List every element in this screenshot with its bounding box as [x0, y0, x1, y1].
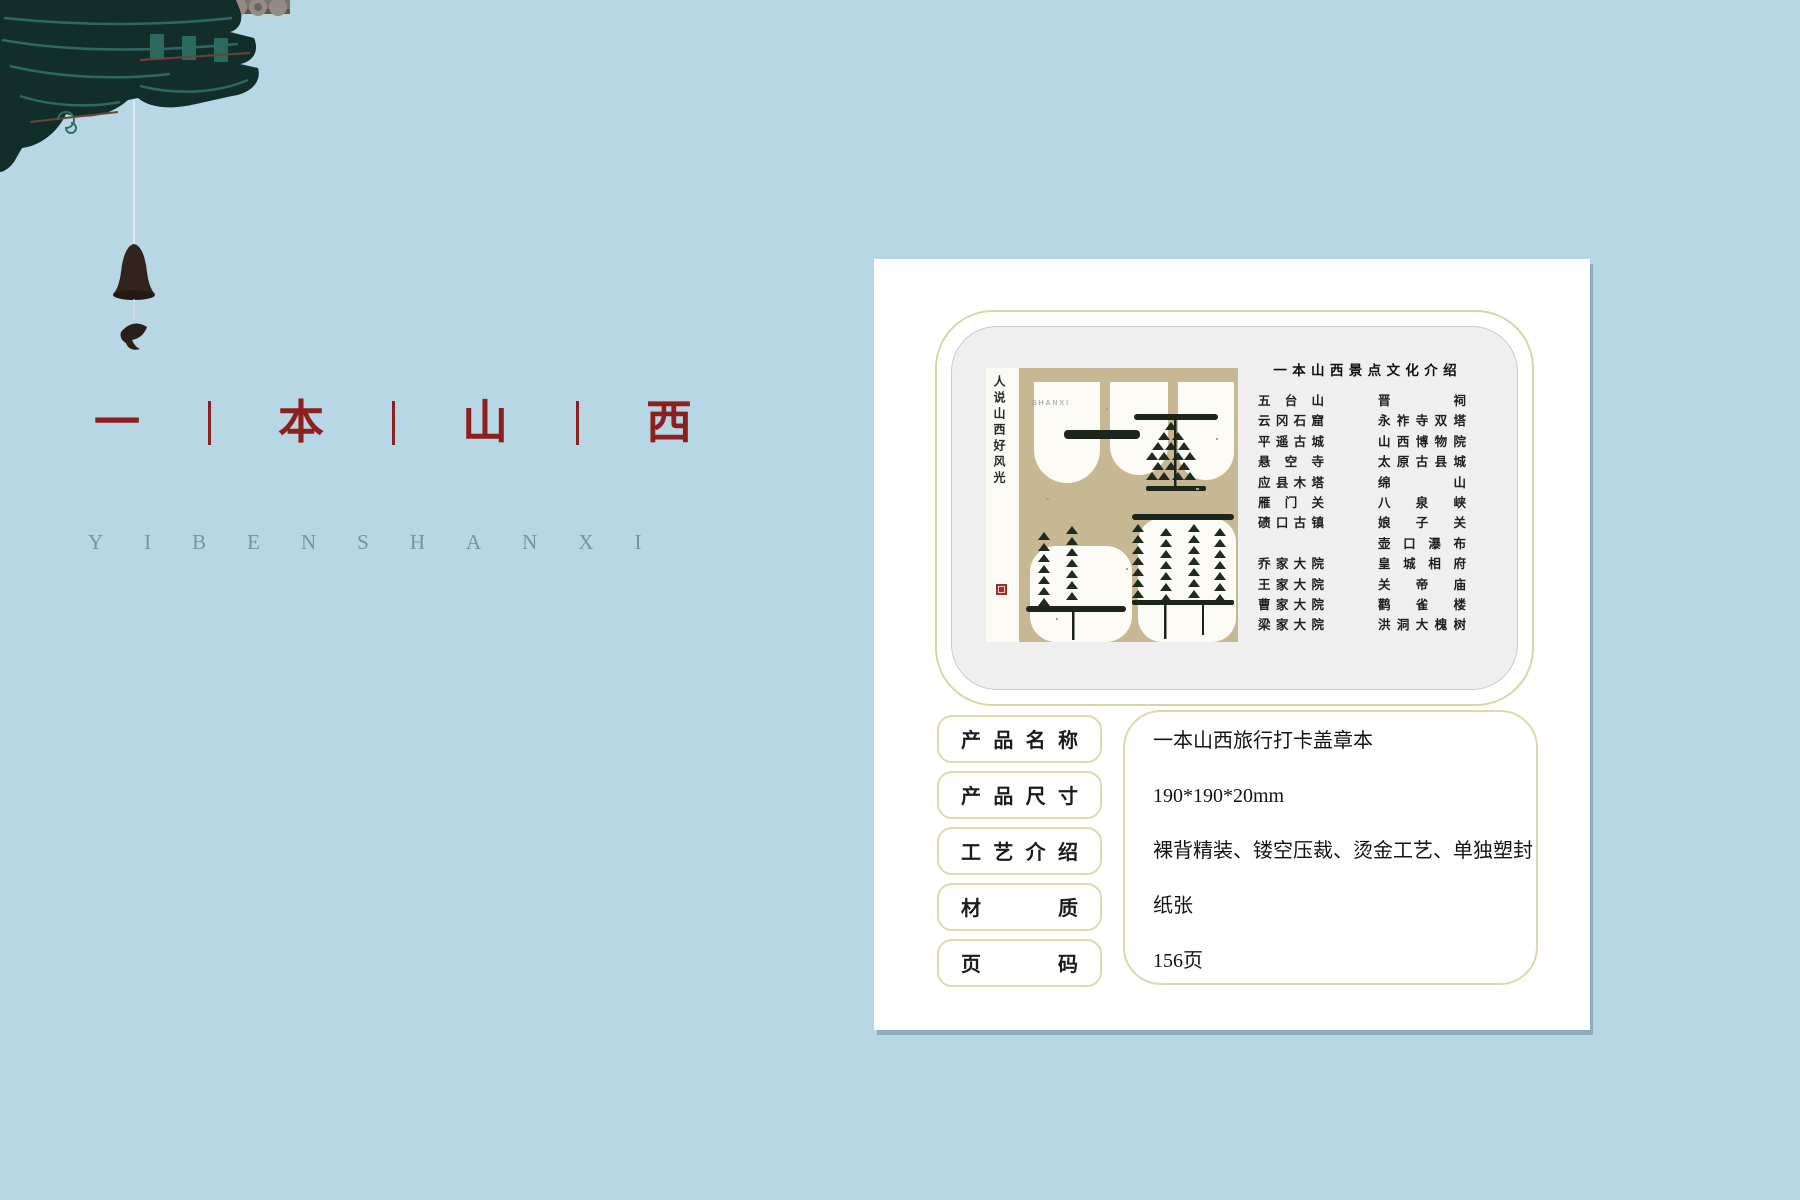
spec-label-material: 材 质 — [937, 883, 1102, 931]
chinese-roof-eave-icon — [0, 0, 290, 370]
scenic-item: 绵 山 — [1378, 473, 1466, 493]
spec-value-product-name: 一本山西旅行打卡盖章本 — [1125, 714, 1536, 769]
scenic-item: 五 台 山 — [1258, 391, 1324, 411]
scenic-list: 一 本 山 西 景 点 文 化 介 绍 五 台 山 云 冈 石 窟 平 遥 古 … — [1258, 359, 1472, 636]
showcase-panel-inner: 人说山西好风光 SHANXI 一 本 山 西 景 点 文 化 介 绍 五 台 山… — [951, 326, 1518, 690]
cover-small-text: SHANXI — [1032, 400, 1070, 407]
title-char: 本 — [278, 400, 324, 446]
title-divider — [392, 401, 395, 445]
scenic-item: 云 冈 石 窟 — [1258, 411, 1324, 431]
spec-values-box: 一本山西旅行打卡盖章本 190*190*20mm 裸背精装、镂空压裁、烫金工艺、… — [1123, 710, 1538, 985]
wind-bell-icon — [113, 244, 155, 300]
scenic-item: 曹 家 大 院 — [1258, 595, 1324, 615]
title-char: 西 — [646, 400, 692, 446]
scenic-item: 壶 口 瀑 布 — [1378, 534, 1466, 554]
spec-value-material: 纸张 — [1125, 879, 1536, 934]
spec-value-product-size: 190*190*20mm — [1125, 769, 1536, 824]
scenic-item: 晋 祠 — [1378, 391, 1466, 411]
scenic-item: 悬 空 寺 — [1258, 452, 1324, 472]
scenic-column-left: 五 台 山 云 冈 石 窟 平 遥 古 城 悬 空 寺 应 县 木 塔 雁 门 … — [1258, 391, 1324, 636]
product-card: 人说山西好风光 SHANXI 一 本 山 西 景 点 文 化 介 绍 五 台 山… — [874, 259, 1590, 1030]
book-cover-art — [986, 368, 1238, 642]
scenic-item: 永 祚 寺 双 塔 — [1378, 411, 1466, 431]
scenic-item: 娘 子 关 — [1378, 513, 1466, 533]
scenic-item: 鹳 雀 楼 — [1378, 595, 1466, 615]
spec-labels: 产 品 名 称 产 品 尺 寸 工 艺 介 绍 材 质 页 码 — [937, 715, 1102, 987]
scenic-item: 山 西 博 物 院 — [1378, 432, 1466, 452]
scenic-item: 乔 家 大 院 — [1258, 554, 1324, 574]
title-char: 山 — [462, 400, 508, 446]
cover-seal-stamp — [996, 584, 1007, 595]
spec-label-pages: 页 码 — [937, 939, 1102, 987]
scenic-item: 碛 口 古 镇 — [1258, 513, 1324, 533]
spec-label-craft: 工 艺 介 绍 — [937, 827, 1102, 875]
eave-illustration — [0, 0, 290, 370]
scenic-item: 雁 门 关 — [1258, 493, 1324, 513]
fish-pendant-icon — [121, 323, 147, 349]
scenic-item: 平 遥 古 城 — [1258, 432, 1324, 452]
scenic-item: 王 家 大 院 — [1258, 575, 1324, 595]
spec-value-pages: 156页 — [1125, 934, 1536, 989]
brand-subtitle: YIBENSHANXI — [88, 530, 708, 555]
showcase-panel: 人说山西好风光 SHANXI 一 本 山 西 景 点 文 化 介 绍 五 台 山… — [935, 310, 1534, 706]
scenic-item: 皇 城 相 府 — [1378, 554, 1466, 574]
book-cover: 人说山西好风光 SHANXI — [986, 368, 1238, 642]
spec-label-product-size: 产 品 尺 寸 — [937, 771, 1102, 819]
spec-value-craft: 裸背精装、镂空压裁、烫金工艺、单独塑封 — [1125, 824, 1536, 879]
title-divider — [576, 401, 579, 445]
scenic-item: 太 原 古 县 城 — [1378, 452, 1466, 472]
cover-strip-text: 人说山西好风光 — [991, 375, 1008, 545]
title-char: 一 — [94, 400, 140, 446]
spec-label-product-name: 产 品 名 称 — [937, 715, 1102, 763]
scenic-item: 关 帝 庙 — [1378, 575, 1466, 595]
page-background: 一 本 山 西 YIBENSHANXI — [0, 0, 1800, 1200]
scenic-item: 应 县 木 塔 — [1258, 473, 1324, 493]
brand-title: 一 本 山 西 — [94, 400, 692, 446]
title-divider — [208, 401, 211, 445]
scenic-item — [1258, 534, 1324, 554]
scenic-item: 梁 家 大 院 — [1258, 615, 1324, 635]
scenic-item: 洪 洞 大 槐 树 — [1378, 615, 1466, 635]
scenic-list-heading: 一 本 山 西 景 点 文 化 介 绍 — [1258, 359, 1472, 379]
scenic-item: 八 泉 峡 — [1378, 493, 1466, 513]
scenic-column-right: 晋 祠 永 祚 寺 双 塔 山 西 博 物 院 太 原 古 县 城 绵 山 八 … — [1378, 391, 1466, 636]
